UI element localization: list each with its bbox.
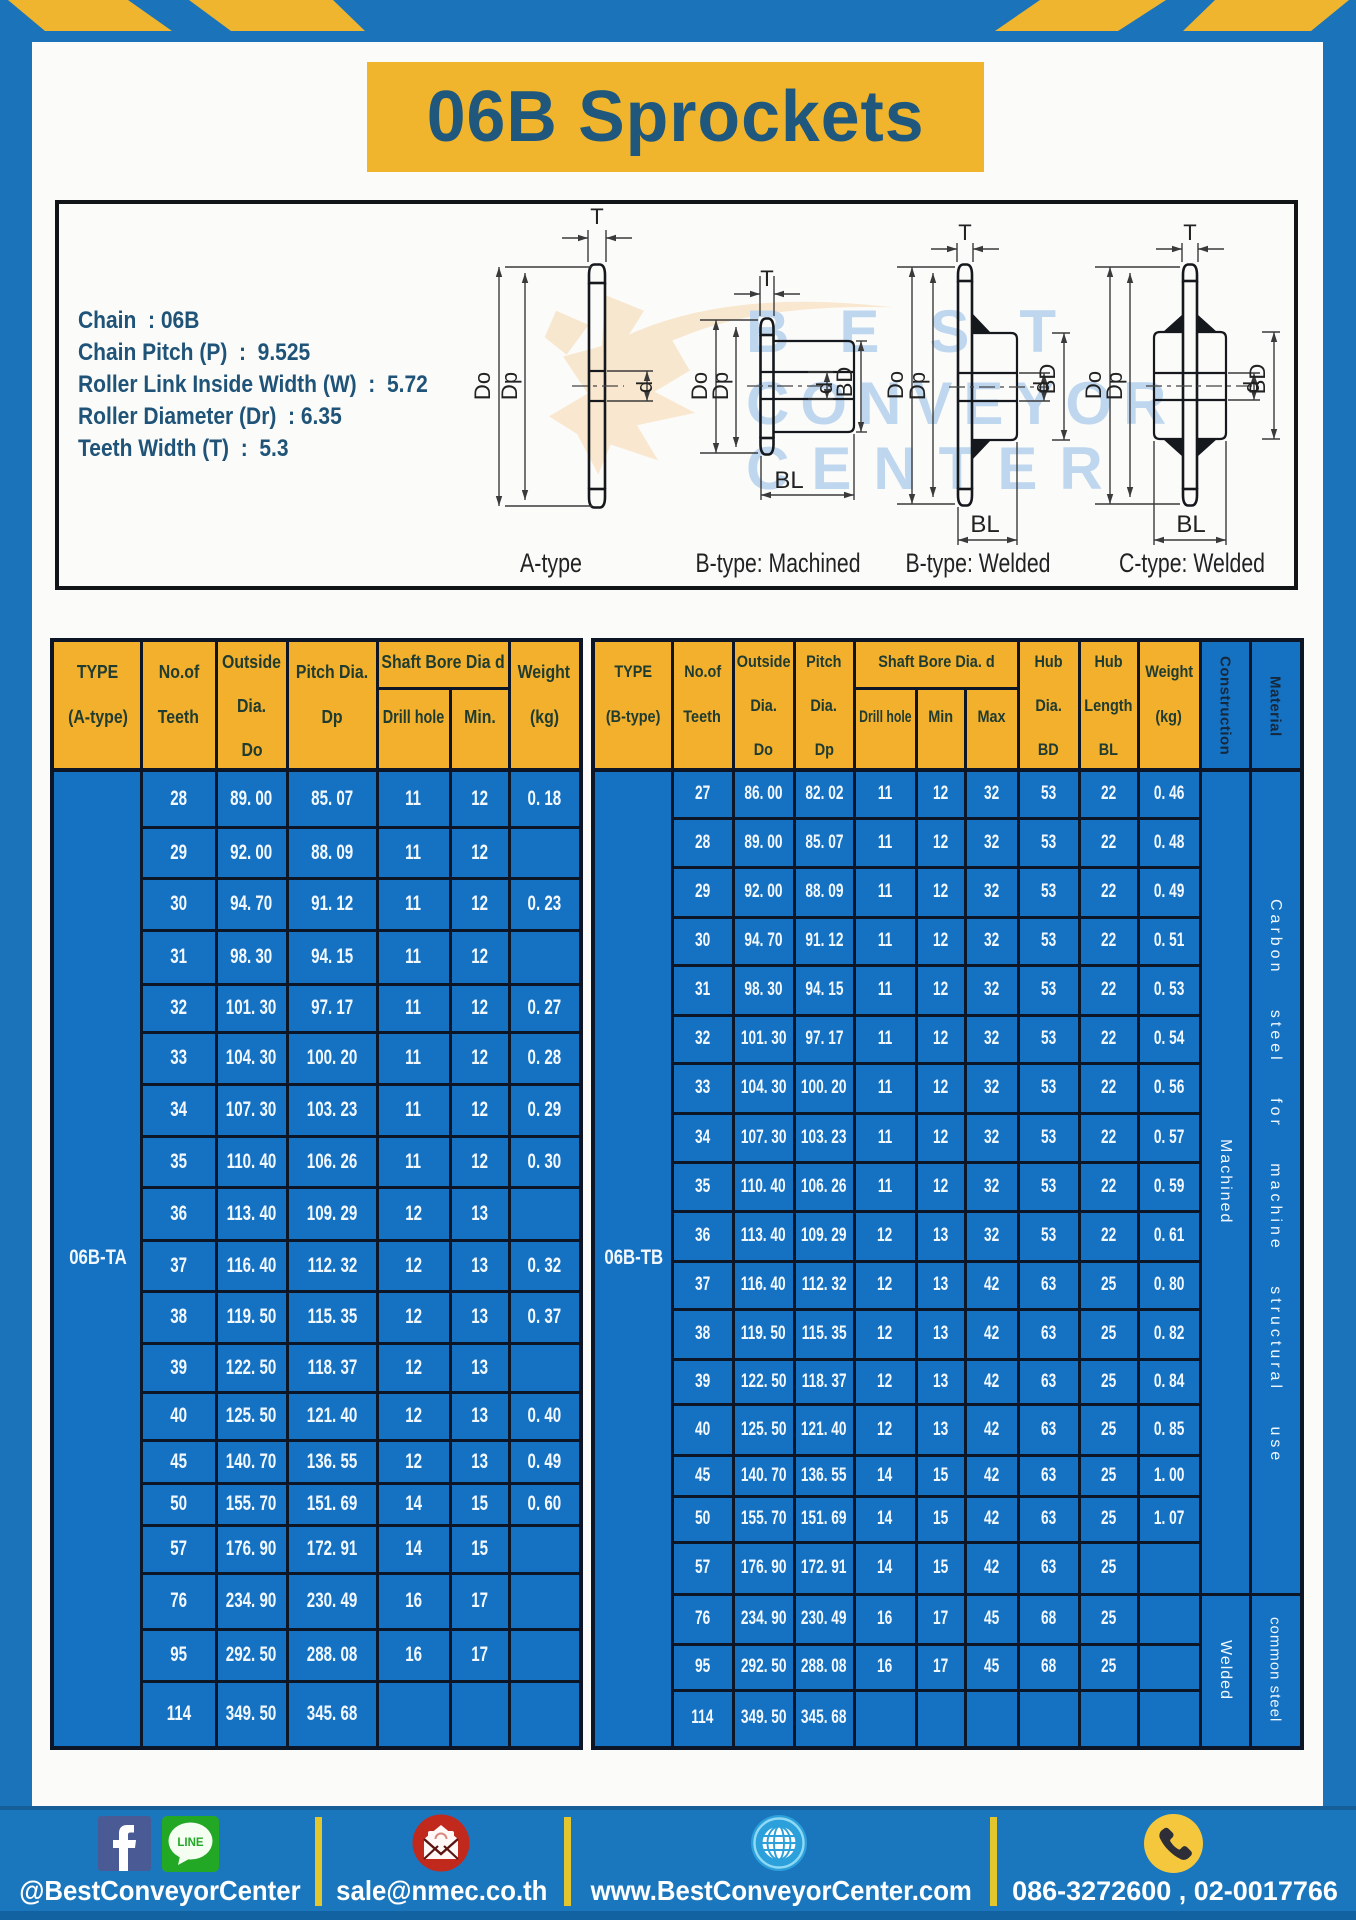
svg-text:d: d xyxy=(632,381,657,393)
svg-text:BD: BD xyxy=(1245,364,1270,395)
svg-text:T: T xyxy=(760,266,773,291)
svg-text:Dp: Dp xyxy=(1102,372,1127,400)
svg-text:BD: BD xyxy=(1035,364,1060,395)
svg-text:Dp: Dp xyxy=(905,372,930,400)
svg-text:BL: BL xyxy=(1176,511,1205,538)
svg-text:B-type: Welded: B-type: Welded xyxy=(906,548,1051,578)
svg-text:BEST: BEST xyxy=(746,298,1106,365)
svg-text:Dp: Dp xyxy=(497,372,522,400)
svg-text:BD: BD xyxy=(832,367,857,398)
svg-text:T: T xyxy=(1183,220,1196,245)
svg-text:A-type: A-type xyxy=(520,548,582,578)
svg-text:C-type: Welded: C-type: Welded xyxy=(1119,548,1265,578)
svg-text:B-type: Machined: B-type: Machined xyxy=(696,548,861,578)
svg-text:BL: BL xyxy=(774,467,803,494)
svg-text:Dp: Dp xyxy=(708,372,733,400)
svg-text:Do: Do xyxy=(470,372,495,400)
svg-text:LINE: LINE xyxy=(177,1837,204,1849)
svg-text:BL: BL xyxy=(970,511,999,538)
svg-text:T: T xyxy=(590,204,603,229)
svg-text:T: T xyxy=(958,220,971,245)
